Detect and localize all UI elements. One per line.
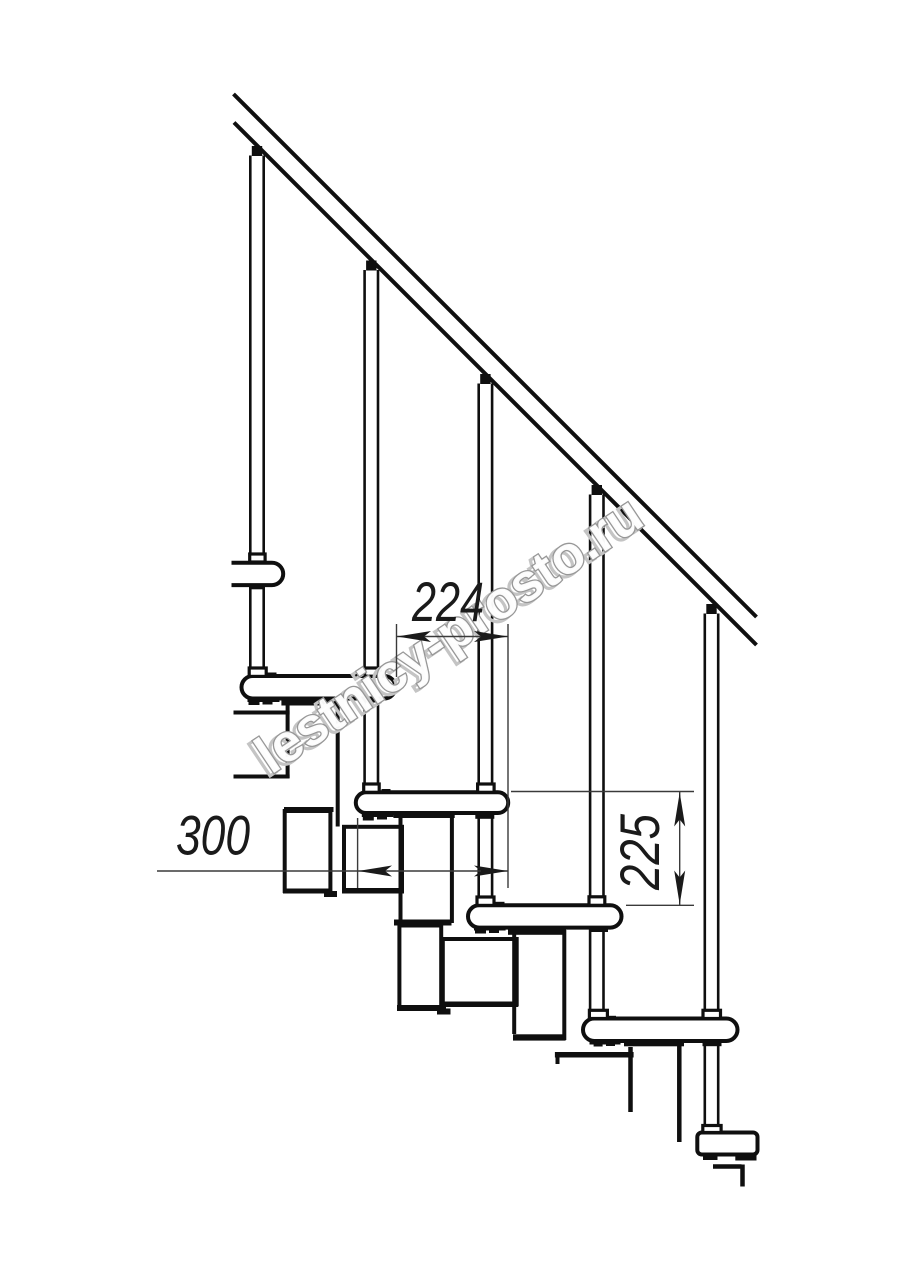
svg-text:224: 224 <box>411 570 484 633</box>
svg-text:225: 225 <box>608 813 671 891</box>
svg-text:300: 300 <box>176 804 250 867</box>
svg-text:lestnicy-prosto.ru: lestnicy-prosto.ru <box>245 484 653 784</box>
